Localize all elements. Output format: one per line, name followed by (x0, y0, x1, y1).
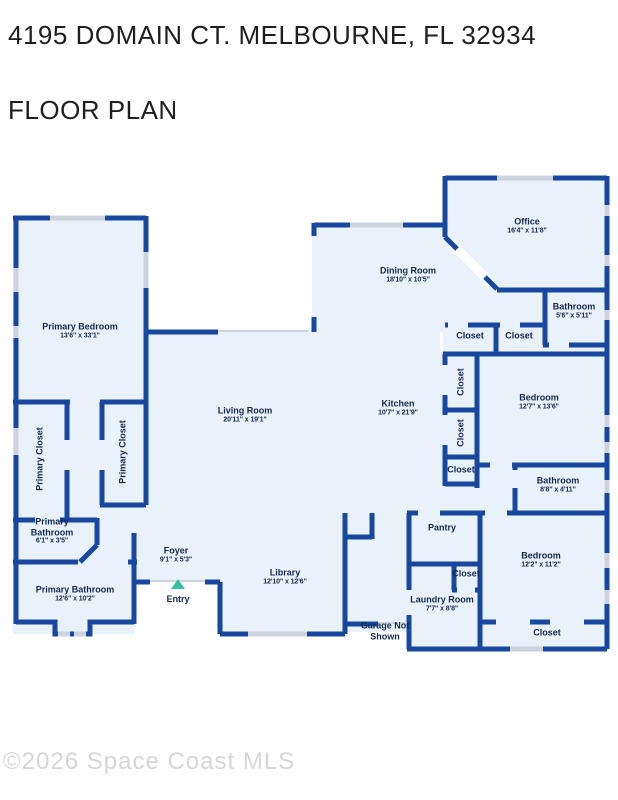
watermark-text: ©2026 Space Coast MLS (3, 748, 295, 776)
entry-marker-icon (171, 579, 185, 589)
floorplan-canvas (0, 0, 618, 800)
entry-label: Entry (166, 594, 189, 604)
page: 4195 DOMAIN CT. MELBOURNE, FL 32934 FLOO… (0, 0, 618, 800)
